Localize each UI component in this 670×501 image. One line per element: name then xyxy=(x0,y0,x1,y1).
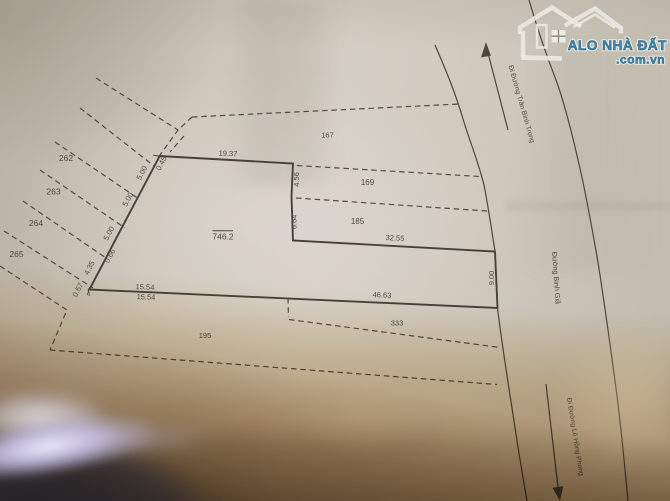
svg-text:ALO NHÀ ĐẤT: ALO NHÀ ĐẤT xyxy=(568,37,668,53)
svg-text:.com.vn: .com.vn xyxy=(616,53,665,67)
